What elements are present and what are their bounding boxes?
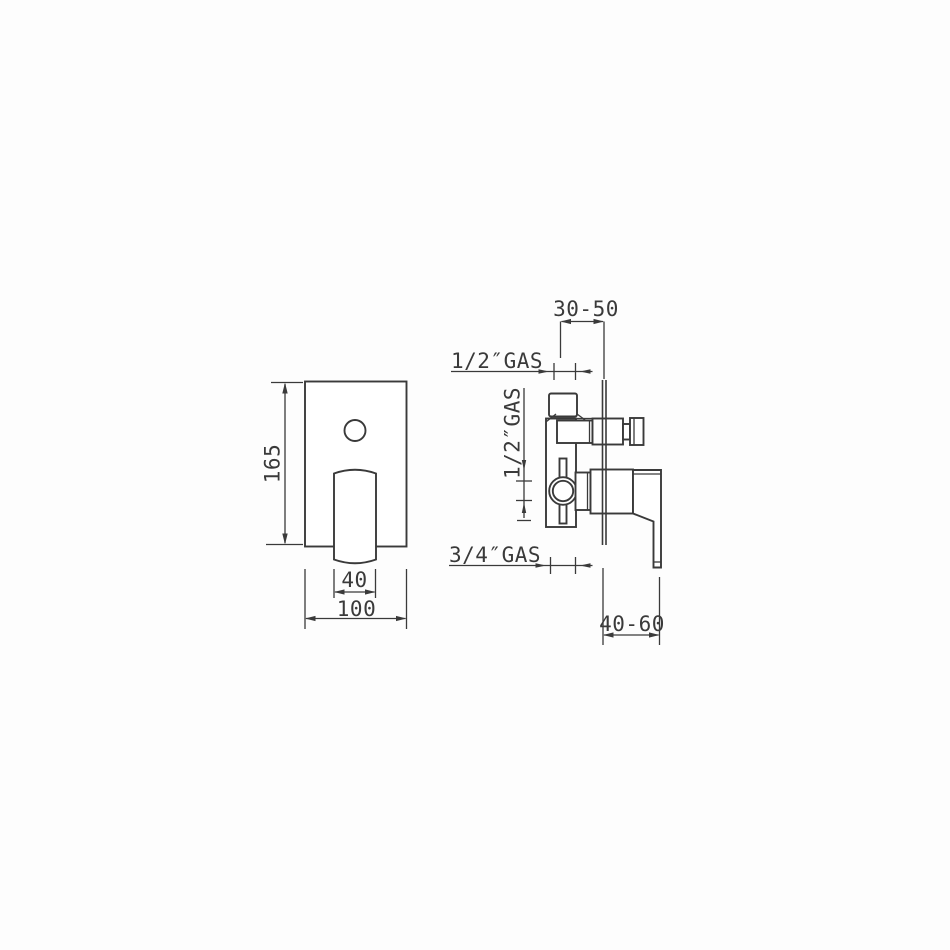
arrowhead-down bbox=[282, 534, 287, 545]
dim-handle-width-label: 40 bbox=[341, 568, 367, 592]
leader-arrow-right bbox=[539, 369, 550, 373]
arrowhead-up bbox=[282, 383, 287, 394]
label-top-outlet: 1/2″GAS bbox=[451, 349, 593, 380]
arrowhead-left bbox=[305, 616, 316, 621]
dim-plate-width-label: 100 bbox=[337, 597, 376, 621]
top-inlet-port bbox=[549, 394, 577, 417]
dim-handle-width: 40 bbox=[334, 568, 376, 598]
leader-arrow-left bbox=[580, 563, 591, 567]
pipe-segment-outer bbox=[593, 419, 624, 445]
cartridge-housing bbox=[591, 470, 634, 514]
label-side-inlet: 1/2″GAS bbox=[501, 387, 533, 521]
technical-drawing-page: 165 40 100 bbox=[0, 0, 950, 950]
leader-arrow-left bbox=[580, 369, 591, 373]
inlet-thread-label: 1/2″GAS bbox=[501, 387, 525, 479]
front-view: 165 40 100 bbox=[261, 382, 407, 630]
front-diverter-knob bbox=[345, 420, 366, 441]
leader-arrow-up bbox=[522, 503, 526, 514]
side-view: 30-50 1/2″GAS 1/2″GAS 3/4″GAS bbox=[449, 297, 665, 645]
pipe-segment-inner bbox=[576, 473, 591, 511]
dim-bottom-depth: 40-60 bbox=[599, 568, 665, 645]
lever-outline bbox=[633, 470, 661, 568]
dim-height-label: 165 bbox=[261, 444, 285, 483]
dim-height: 165 bbox=[261, 383, 304, 545]
pipe-neck bbox=[623, 424, 630, 440]
label-bottom-outlet: 3/4″GAS bbox=[449, 543, 593, 574]
arrowhead-right bbox=[396, 616, 407, 621]
top-outlet-thread-label: 1/2″GAS bbox=[451, 349, 543, 373]
front-lever-handle bbox=[334, 470, 376, 564]
dim-top-depth-label: 30-50 bbox=[553, 297, 619, 321]
dim-bottom-depth-label: 40-60 bbox=[599, 612, 665, 636]
lower-outlet-pipe bbox=[576, 470, 634, 514]
pipe-end-cap bbox=[630, 418, 644, 445]
bottom-outlet-thread-label: 3/4″GAS bbox=[449, 543, 541, 567]
upper-outlet-pipe bbox=[557, 418, 644, 445]
side-lever-handle bbox=[633, 470, 661, 568]
mixer-technical-drawing: 165 40 100 bbox=[0, 0, 950, 950]
pipe-segment-inner bbox=[557, 421, 593, 444]
dim-top-depth: 30-50 bbox=[553, 297, 619, 379]
